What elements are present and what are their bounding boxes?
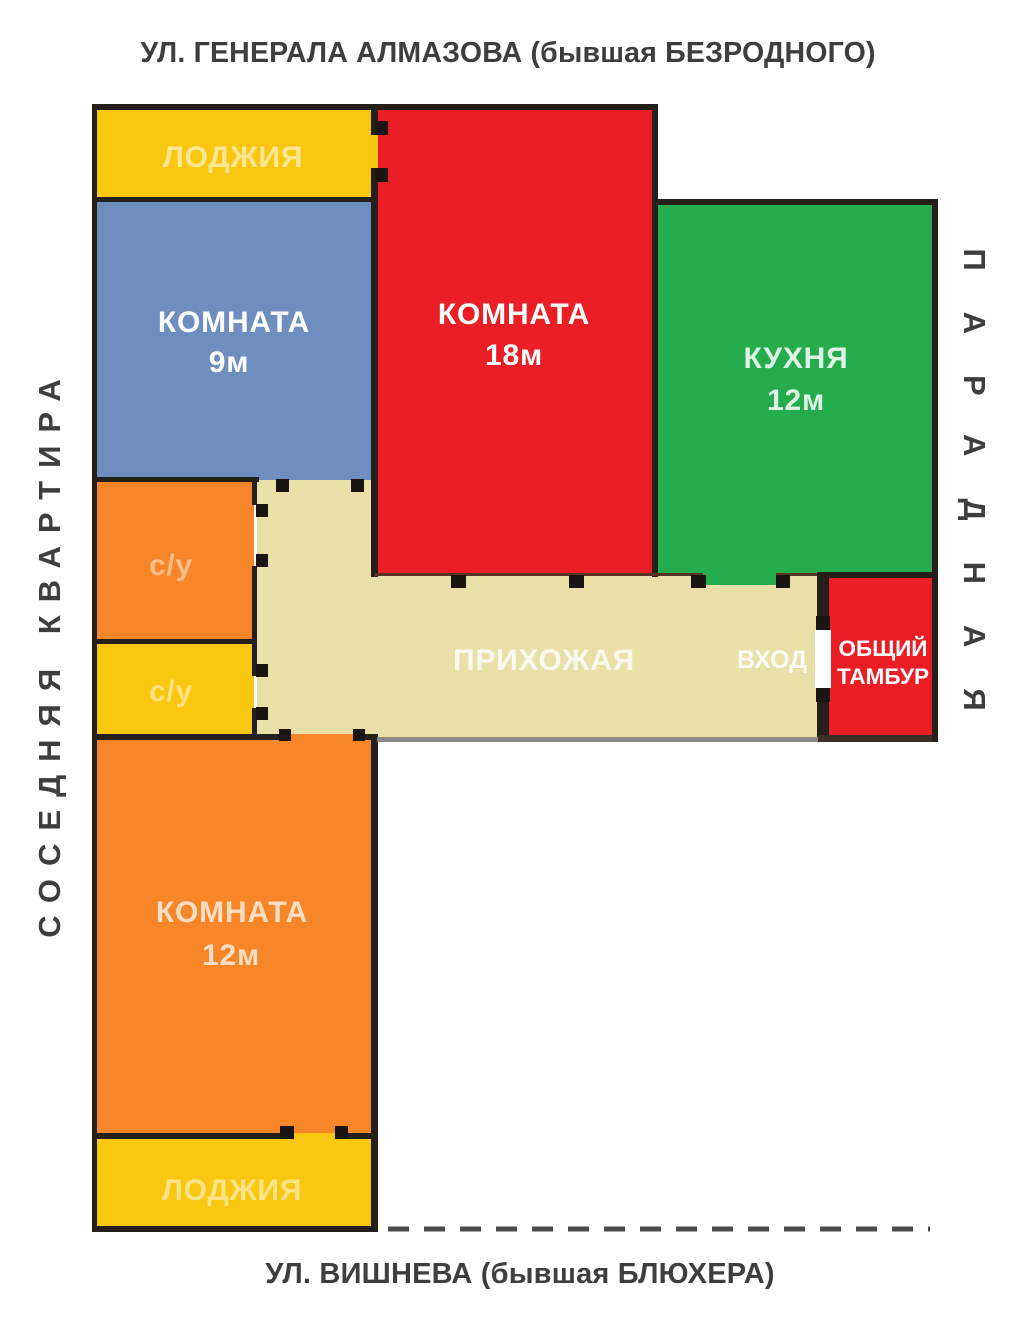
svg-text:ПАРАДНАЯ: ПАРАДНАЯ [957, 248, 992, 751]
svg-text:ЛОДЖИЯ: ЛОДЖИЯ [162, 1174, 302, 1207]
svg-text:с/у: с/у [149, 675, 193, 708]
svg-text:КОМНАТА: КОМНАТА [438, 298, 590, 331]
svg-text:КОМНАТА: КОМНАТА [156, 896, 308, 929]
svg-text:ЛОДЖИЯ: ЛОДЖИЯ [163, 141, 303, 174]
svg-text:КОМНАТА: КОМНАТА [158, 306, 310, 339]
svg-text:УЛ. ГЕНЕРАЛА АЛМАЗОВА (бывшая: УЛ. ГЕНЕРАЛА АЛМАЗОВА (бывшая БЕЗРОДНОГО… [140, 37, 875, 69]
svg-text:УЛ. ВИШНЕВА (бывшая БЛЮХЕРА): УЛ. ВИШНЕВА (бывшая БЛЮХЕРА) [265, 1258, 775, 1290]
svg-text:ТАМБУР: ТАМБУР [837, 664, 929, 689]
svg-text:ОБЩИЙ: ОБЩИЙ [839, 636, 928, 661]
svg-text:КУХНЯ: КУХНЯ [744, 342, 849, 375]
svg-text:СОСЕДНЯЯ КВАРТИРА: СОСЕДНЯЯ КВАРТИРА [32, 366, 67, 937]
svg-text:ПРИХОЖАЯ: ПРИХОЖАЯ [453, 644, 635, 677]
svg-text:ВХОД: ВХОД [737, 646, 807, 674]
svg-text:12м: 12м [767, 384, 825, 417]
svg-text:с/у: с/у [149, 549, 193, 582]
svg-text:12м: 12м [202, 939, 260, 972]
svg-text:9м: 9м [209, 346, 249, 379]
svg-text:18м: 18м [485, 339, 543, 372]
